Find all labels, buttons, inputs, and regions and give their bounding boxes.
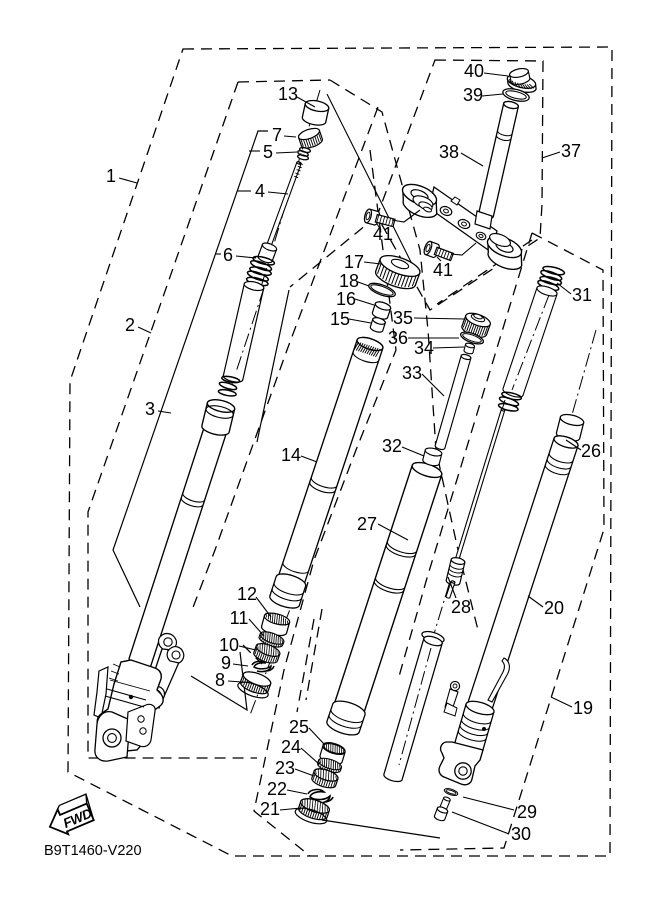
svg-text:25: 25	[289, 717, 309, 737]
svg-text:15: 15	[330, 309, 350, 329]
svg-text:19: 19	[573, 698, 593, 718]
svg-text:37: 37	[561, 141, 581, 161]
svg-text:26: 26	[581, 441, 601, 461]
svg-text:5: 5	[263, 142, 273, 162]
svg-text:21: 21	[260, 799, 280, 819]
svg-text:31: 31	[572, 285, 592, 305]
svg-text:9: 9	[221, 653, 231, 673]
svg-text:2: 2	[125, 315, 135, 335]
svg-text:28: 28	[451, 597, 471, 617]
svg-text:23: 23	[275, 758, 295, 778]
svg-text:29: 29	[517, 802, 537, 822]
svg-text:1: 1	[106, 166, 116, 186]
svg-text:B9T1460-V220: B9T1460-V220	[44, 843, 142, 859]
svg-text:4: 4	[255, 181, 265, 201]
svg-text:41: 41	[433, 260, 453, 280]
svg-text:7: 7	[272, 125, 282, 145]
svg-text:24: 24	[281, 737, 301, 757]
svg-text:12: 12	[237, 584, 257, 604]
svg-text:41: 41	[373, 224, 393, 244]
svg-text:39: 39	[463, 85, 483, 105]
svg-text:6: 6	[223, 245, 233, 265]
svg-text:22: 22	[267, 779, 287, 799]
svg-text:11: 11	[230, 608, 249, 628]
svg-text:33: 33	[402, 363, 422, 383]
svg-text:35: 35	[393, 308, 413, 328]
svg-text:18: 18	[339, 271, 359, 291]
svg-text:16: 16	[336, 289, 356, 309]
svg-text:34: 34	[414, 338, 434, 358]
svg-text:10: 10	[219, 635, 239, 655]
svg-text:8: 8	[215, 670, 225, 690]
svg-text:20: 20	[544, 598, 564, 618]
svg-text:30: 30	[511, 824, 531, 844]
svg-text:40: 40	[464, 61, 484, 81]
svg-text:14: 14	[281, 445, 301, 465]
svg-text:32: 32	[382, 436, 402, 456]
svg-text:3: 3	[145, 399, 155, 419]
svg-text:27: 27	[357, 514, 377, 534]
svg-text:38: 38	[439, 142, 459, 162]
svg-text:36: 36	[388, 328, 408, 348]
svg-text:17: 17	[344, 252, 364, 272]
svg-text:13: 13	[278, 84, 298, 104]
